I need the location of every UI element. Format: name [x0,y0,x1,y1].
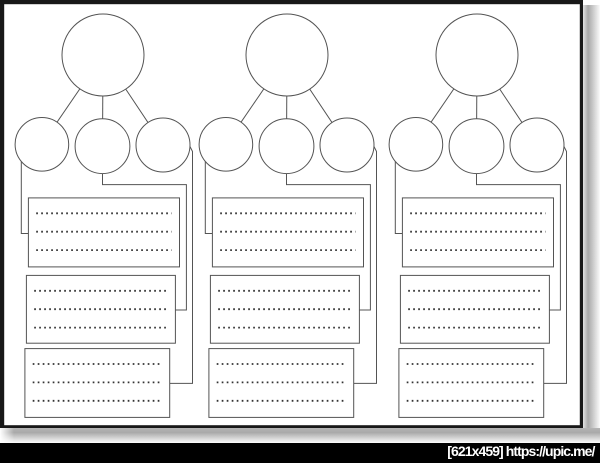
svg-text:[621x459] https://upic.me/: [621x459] https://upic.me/ [447,443,595,459]
